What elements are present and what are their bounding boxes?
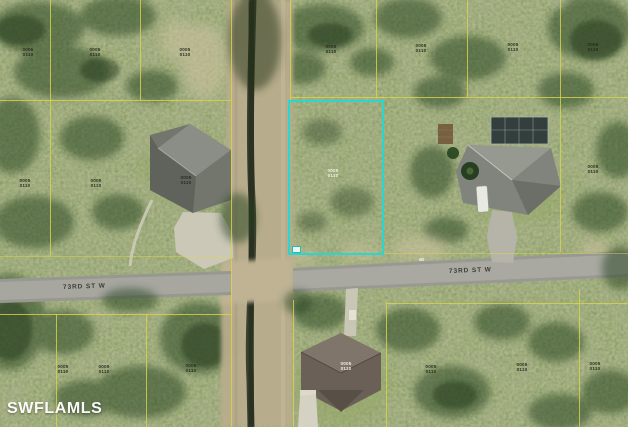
lot-corner-marker (292, 246, 301, 253)
parcel-line (386, 303, 628, 304)
parcel-id-label: 0005 0110 (326, 168, 341, 178)
parcel-id-label: 0005 0110 (184, 363, 199, 373)
pool-screen-enclosure (491, 117, 548, 144)
parcel-line (376, 0, 377, 97)
parcel-id-label: 0005 0110 (424, 364, 439, 374)
parcel-line (146, 314, 147, 427)
parcel-id-label: 0005 0110 (586, 164, 601, 174)
parcel-line (231, 0, 232, 427)
parcel-line (560, 0, 561, 252)
parcel-line (467, 0, 468, 97)
parcel-id-label: 0005 0110 (179, 175, 194, 185)
wood-structure (438, 124, 453, 144)
parcel-line (290, 97, 628, 98)
parcel-id-label: 0005 0110 (97, 364, 112, 374)
mls-watermark: SWFLAMLS (7, 400, 102, 418)
parcel-id-label: 0005 0110 (88, 47, 103, 57)
aerial-parcel-photo: 0005 0110 0005 0110 0005 0110 0005 0110 … (0, 0, 628, 427)
parcel-id-label: 0005 0110 (324, 44, 339, 54)
parcel-line (0, 256, 231, 257)
driveway-south-house-south (298, 394, 318, 427)
parcel-id-label: 0005 0110 (339, 361, 354, 371)
parcel-id-label: 0005 0110 (515, 362, 530, 372)
parcel-id-label: 0005 0110 (586, 42, 601, 52)
parcel-line (579, 290, 580, 427)
parcel-line (50, 0, 51, 256)
rv-trailer (476, 186, 489, 213)
parcel-line (0, 100, 231, 101)
parcel-id-label: 0005 0110 (18, 178, 33, 188)
parcel-id-label: 0005 0110 (414, 43, 429, 53)
parcel-line (386, 302, 387, 427)
parcel-id-label: 0005 0110 (506, 42, 521, 52)
vehicle (349, 310, 356, 320)
street-label-west: 73RD ST W (63, 283, 106, 291)
parcel-line (290, 0, 291, 100)
parcel-id-label: 0005 0110 (89, 178, 104, 188)
driveway-east-house (487, 210, 517, 263)
parcel-id-label: 0005 0110 (178, 47, 193, 57)
parcel-id-label: 0005 0110 (56, 364, 71, 374)
parcel-line (140, 0, 141, 100)
parcel-line (0, 314, 231, 315)
parcel-line (293, 300, 294, 427)
palm-tree (447, 147, 459, 159)
parcel-id-label: 0005 0110 (588, 361, 603, 371)
parcel-id-label: 0005 0110 (21, 47, 36, 57)
